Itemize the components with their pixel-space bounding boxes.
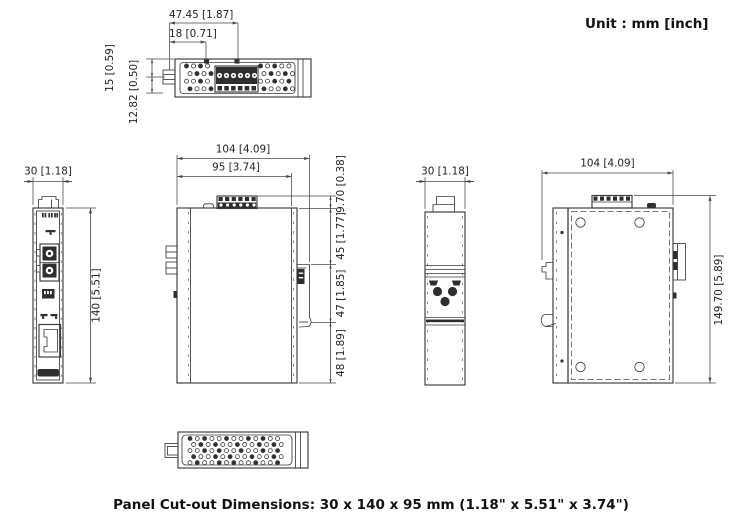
vent-hole: [276, 72, 280, 76]
unit-note: Unit : mm [inch]: [585, 16, 708, 32]
vent-hole: [188, 449, 192, 453]
vent-hole: [203, 461, 207, 465]
top-view-vents-left: [184, 64, 213, 91]
left-side-view: 104 [4.09] 95 [3.74] 9.70 [0.38] 45 [1.7…: [166, 144, 347, 384]
top-view-edge-mark: [235, 60, 240, 64]
vent-hole: [232, 461, 236, 465]
right-view-body: [568, 208, 673, 383]
dim-top-depth-upper: 15 [0.59]: [104, 44, 116, 92]
bottom-view: [165, 432, 308, 468]
vent-hole: [272, 455, 276, 459]
vent-hole: [258, 64, 262, 68]
vent-hole: [202, 87, 206, 91]
side-view-top-bump: [204, 204, 214, 208]
vent-hole: [272, 443, 276, 447]
vent-hole: [210, 449, 214, 453]
vent-hole: [268, 461, 272, 465]
vent-hole: [257, 443, 261, 447]
dim-front-height: 140 [5.51]: [91, 268, 103, 322]
top-view-edge-mark: [204, 60, 209, 64]
vent-hole: [246, 461, 250, 465]
vent-hole: [262, 87, 266, 91]
vent-hole: [250, 443, 254, 447]
front-view-sc-fiber-connector: [37, 244, 60, 281]
vent-hole: [261, 461, 265, 465]
vent-hole: [235, 455, 239, 459]
vent-hole: [268, 437, 272, 441]
vent-hole: [276, 87, 280, 91]
vent-hole: [195, 461, 199, 465]
top-view-terminal-block: [215, 66, 258, 92]
vent-hole: [239, 461, 243, 465]
panel-cutout-note: Panel Cut-out Dimensions: 30 x 140 x 95 …: [113, 497, 629, 513]
vent-hole: [243, 455, 247, 459]
vent-hole: [217, 461, 221, 465]
top-view: 47.45 [1.87] 18 [0.71] 15 [0.59] 12.82 […: [104, 9, 311, 124]
vent-hole: [228, 455, 232, 459]
vent-hole: [243, 443, 247, 447]
vent-hole: [195, 437, 199, 441]
vent-hole: [280, 64, 284, 68]
front-view-top-terminal: [39, 197, 59, 209]
vent-hole: [188, 437, 192, 441]
front-view-led-indicators: [42, 213, 58, 218]
dim-top-depth-lower: 12.82 [0.50]: [128, 60, 140, 124]
dim-side-din-clip: 47 [1.85]: [335, 270, 347, 318]
front-view-dip-switch: [42, 289, 55, 299]
dimension-drawing: 47.45 [1.87] 18 [0.71] 15 [0.59] 12.82 […: [0, 0, 741, 530]
vent-hole: [205, 79, 209, 83]
vent-hole: [206, 443, 210, 447]
vent-hole: [254, 461, 258, 465]
dim-top-width-overall: 47.45 [1.87]: [169, 9, 233, 21]
vent-hole: [276, 449, 280, 453]
vent-hole: [232, 437, 236, 441]
right-view-top-bump: [647, 203, 656, 208]
vent-hole: [280, 79, 284, 83]
dim-side-upper: 45 [1.77]: [335, 212, 347, 260]
dim-side-depth-overall: 104 [4.09]: [216, 144, 270, 156]
vent-hole: [262, 72, 266, 76]
vent-hole: [199, 455, 203, 459]
vent-hole: [225, 449, 229, 453]
vent-hole: [266, 64, 270, 68]
dim-right-height-overall: 149.70 [5.89]: [713, 255, 725, 326]
vent-hole: [192, 455, 196, 459]
vent-hole: [191, 79, 195, 83]
front-view-t-marks: [41, 314, 58, 319]
vent-hole: [217, 437, 221, 441]
vent-hole: [192, 443, 196, 447]
vent-hole: [273, 64, 277, 68]
right-view-din-plate: [553, 208, 568, 383]
vent-hole: [214, 455, 218, 459]
vent-hole: [287, 79, 291, 83]
dim-side-terminal-height: 9.70 [0.38]: [335, 155, 347, 213]
bottom-view-connector-nose: [165, 444, 178, 458]
vent-hole: [209, 72, 213, 76]
vent-hole: [261, 437, 265, 441]
vent-hole: [268, 449, 272, 453]
vent-hole: [276, 461, 280, 465]
drawing-svg: 47.45 [1.87] 18 [0.71] 15 [0.59] 12.82 […: [0, 0, 741, 530]
front-view-t-mark: [46, 230, 56, 235]
vent-hole: [184, 79, 188, 83]
vent-hole: [266, 79, 270, 83]
dim-side-depth-body: 95 [3.74]: [212, 162, 260, 174]
right-view-din-hooks: [541, 263, 556, 327]
vent-hole: [206, 455, 210, 459]
vent-hole: [283, 87, 287, 91]
rear-view: 30 [1.18]: [416, 166, 474, 386]
vent-hole: [257, 455, 261, 459]
vent-hole: [235, 443, 239, 447]
vent-hole: [195, 87, 199, 91]
vent-hole: [195, 449, 199, 453]
vent-hole: [269, 87, 273, 91]
vent-hole: [239, 437, 243, 441]
vent-hole: [290, 72, 294, 76]
vent-hole: [269, 72, 273, 76]
right-view-terminal-block: [592, 196, 632, 209]
front-view-bottom-slot: [38, 369, 60, 377]
vent-hole: [188, 461, 192, 465]
vent-hole: [221, 455, 225, 459]
right-view-mount-holes: [560, 218, 644, 372]
dim-top-width-terminal: 18 [0.71]: [169, 28, 217, 40]
vent-hole: [203, 437, 207, 441]
side-view-body: [177, 208, 297, 383]
side-view-terminal-block: [217, 196, 257, 209]
vent-hole: [290, 87, 294, 91]
side-view-connector-noses: [166, 246, 177, 298]
vent-hole: [205, 64, 209, 68]
vent-hole: [246, 449, 250, 453]
vent-hole: [239, 449, 243, 453]
dim-side-lower: 48 [1.89]: [335, 329, 347, 377]
right-view-connector-bracket: [673, 244, 686, 299]
rear-view-lower-band: [425, 318, 465, 326]
vent-hole: [254, 437, 258, 441]
vent-hole: [265, 443, 269, 447]
vent-hole: [209, 87, 213, 91]
vent-hole: [202, 72, 206, 76]
vent-hole: [198, 64, 202, 68]
vent-hole: [225, 461, 229, 465]
vent-hole: [261, 449, 265, 453]
vent-hole: [279, 443, 283, 447]
bottom-view-vents: [188, 437, 283, 465]
vent-hole: [184, 64, 188, 68]
vent-hole: [191, 64, 195, 68]
vent-hole: [195, 72, 199, 76]
vent-hole: [276, 437, 280, 441]
vent-hole: [273, 79, 277, 83]
dim-right-depth-overall: 104 [4.09]: [580, 158, 634, 170]
vent-hole: [246, 437, 250, 441]
vent-hole: [221, 443, 225, 447]
vent-hole: [232, 449, 236, 453]
vent-hole: [279, 455, 283, 459]
front-view-rj45-port: [39, 325, 61, 358]
vent-hole: [265, 455, 269, 459]
front-view: 30 [1.18] 140 [5.51]: [24, 166, 103, 384]
vent-hole: [214, 443, 218, 447]
vent-hole: [258, 79, 262, 83]
vent-hole: [217, 449, 221, 453]
right-side-view: 104 [4.09] 149.70 [5.89]: [541, 158, 725, 384]
dim-front-width: 30 [1.18]: [24, 166, 72, 178]
top-view-vents-right: [258, 64, 294, 91]
vent-hole: [188, 72, 192, 76]
rear-view-mount-holes: [433, 287, 457, 306]
vent-hole: [254, 449, 258, 453]
vent-hole: [198, 79, 202, 83]
vent-hole: [210, 461, 214, 465]
vent-hole: [225, 437, 229, 441]
vent-hole: [287, 64, 291, 68]
side-view-din-clip: [297, 265, 311, 328]
vent-hole: [188, 87, 192, 91]
vent-hole: [210, 437, 214, 441]
rear-view-upper-band: [425, 266, 465, 286]
vent-hole: [250, 455, 254, 459]
vent-hole: [228, 443, 232, 447]
dim-rear-width: 30 [1.18]: [421, 166, 469, 178]
vent-hole: [283, 72, 287, 76]
vent-hole: [199, 443, 203, 447]
vent-hole: [203, 449, 207, 453]
